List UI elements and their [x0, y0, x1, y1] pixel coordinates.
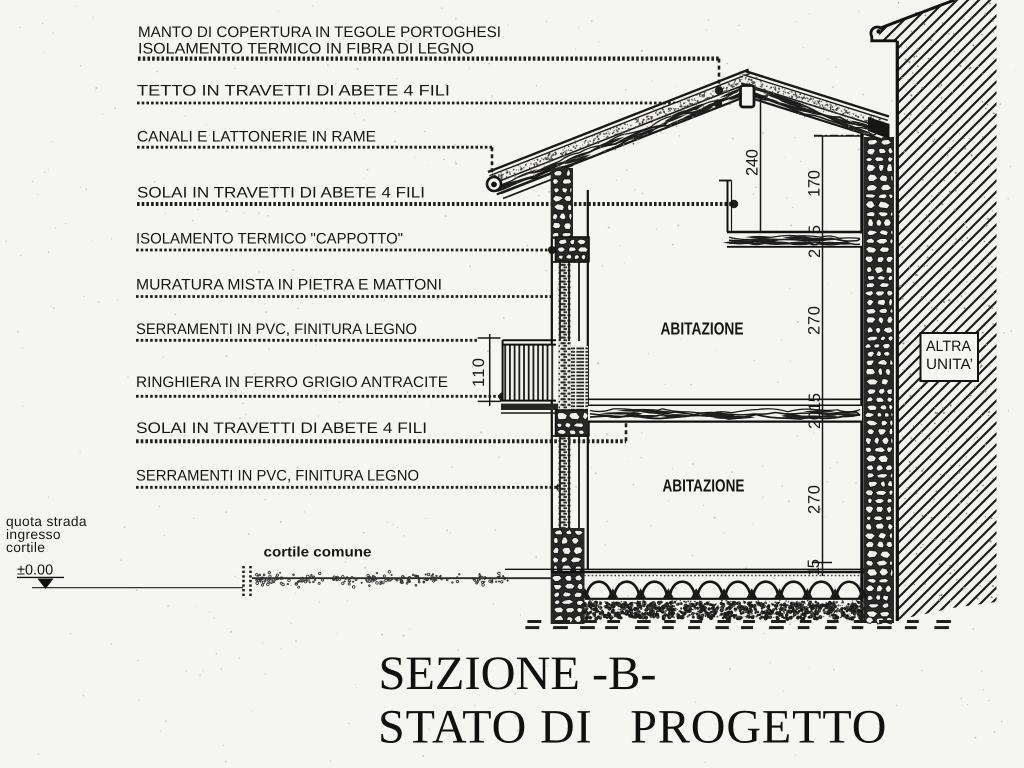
svg-text:SEZIONE -B-: SEZIONE -B- [379, 647, 657, 700]
svg-text:CANALI E LATTONERIE IN RAME: CANALI E LATTONERIE IN RAME [137, 129, 376, 146]
svg-text:RINGHIERA IN FERRO GRIGIO ANTR: RINGHIERA IN FERRO GRIGIO ANTRACITE [136, 374, 448, 391]
svg-text:MANTO DI COPERTURA IN TEGOLE P: MANTO DI COPERTURA IN TEGOLE PORTOGHESI [138, 24, 501, 41]
svg-text:240: 240 [744, 149, 762, 176]
svg-text:110: 110 [470, 358, 488, 387]
svg-text:cortile comune: cortile comune [264, 544, 372, 560]
svg-text:2015: 2015 [806, 393, 824, 429]
svg-text:170: 170 [806, 170, 824, 197]
svg-text:STATO DI PROGETTO: STATO DI PROGETTO [378, 701, 887, 754]
svg-text:ISOLAMENTO TERMICO "CAPPOTTO": ISOLAMENTO TERMICO "CAPPOTTO" [136, 231, 403, 248]
svg-text:270: 270 [806, 306, 824, 335]
svg-text:ABITAZIONE: ABITAZIONE [663, 476, 745, 496]
svg-text:cortile: cortile [6, 540, 45, 555]
svg-text:SERRAMENTI IN PVC, FINITURA LE: SERRAMENTI IN PVC, FINITURA LEGNO [136, 468, 419, 485]
svg-text:TETTO IN TRAVETTI DI ABETE: TETTO IN TRAVETTI DI ABETE 4 FILI [137, 83, 450, 100]
svg-text:MURATURA MISTA IN PIETRA E MAT: MURATURA MISTA IN PIETRA E MATTONI [136, 277, 442, 294]
svg-text:205: 205 [806, 225, 824, 258]
svg-text:ISOLAMENTO TERMICO IN FIBRA: ISOLAMENTO TERMICO IN FIBRA DI LEGNO [138, 41, 474, 58]
svg-text:SOLAI IN TRAVETTI DI ABETE: SOLAI IN TRAVETTI DI ABETE 4 FILI [137, 185, 425, 202]
svg-text:UNITA’: UNITA’ [926, 356, 973, 373]
svg-text:SOLAI IN TRAVETTI DI ABETE: SOLAI IN TRAVETTI DI ABETE 4 FILI [136, 420, 427, 437]
svg-text:ALTRA: ALTRA [926, 338, 971, 355]
svg-text:SERRAMENTI IN PVC, FINITURA LE: SERRAMENTI IN PVC, FINITURA LEGNO [136, 321, 417, 338]
svg-text:15: 15 [805, 559, 823, 576]
svg-text:±0.00: ±0.00 [17, 563, 53, 579]
svg-text:ABITAZIONE: ABITAZIONE [661, 319, 744, 339]
svg-text:270: 270 [806, 485, 824, 514]
